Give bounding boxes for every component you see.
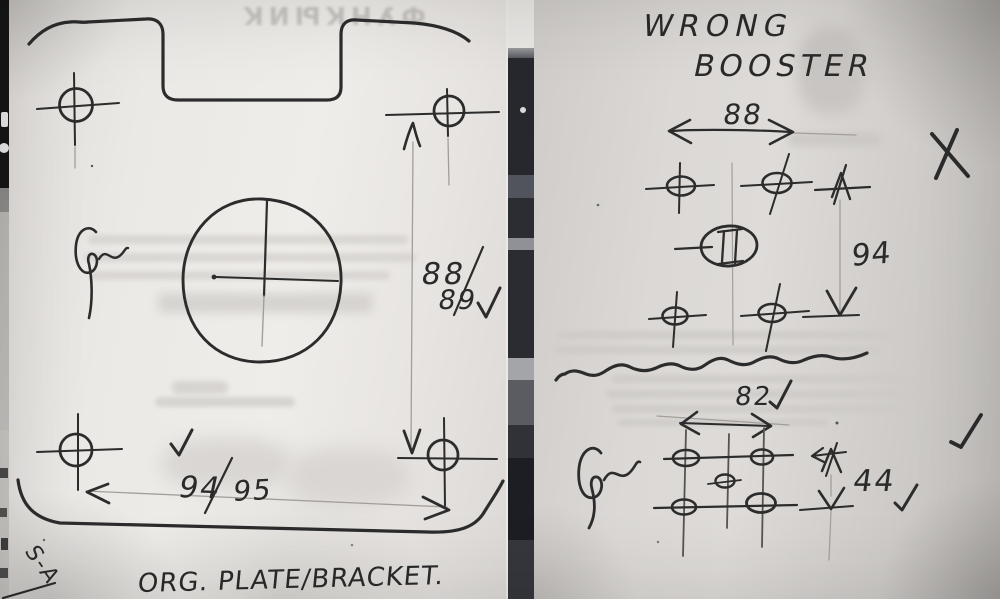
- edge-speck: [0, 468, 8, 478]
- title-line-2: BOOSTER: [690, 49, 877, 84]
- cursive-stroke: [579, 448, 602, 528]
- check-icon: [895, 485, 917, 510]
- hole-top-right: [386, 89, 499, 185]
- cursive-stroke: [76, 228, 97, 318]
- height-dimension-44: 44: [800, 443, 917, 560]
- dimension-bottom-line: [803, 315, 859, 317]
- big-check-icon: [951, 415, 981, 447]
- width-dimension-88: 88: [669, 98, 856, 144]
- cursive-initial-mark-left: [76, 228, 128, 318]
- center-guideline: [732, 163, 733, 345]
- upper-bolt-holes: [646, 154, 812, 351]
- hole-circle: [434, 96, 464, 126]
- arrow-down-icon: [404, 430, 420, 453]
- check-icon: [171, 430, 192, 455]
- hole-bottom-left: [37, 414, 122, 490]
- width-dimension-82: 82: [657, 381, 791, 437]
- hole-ellipse: [747, 494, 776, 513]
- arrow-up-icon: [404, 123, 420, 149]
- hole-crosshair: [37, 73, 119, 145]
- edge-speck: [0, 508, 7, 517]
- arrow-left-icon: [87, 484, 109, 503]
- x-mark-icon: [932, 130, 968, 178]
- check-icon: [478, 288, 500, 317]
- horizontal-dimension-94-95: 94 95: [86, 430, 449, 519]
- corner-underline: [3, 583, 55, 598]
- hole-crosshair: [398, 418, 497, 507]
- bore-vertical-line: [264, 201, 267, 296]
- ink-specks: [43, 165, 839, 547]
- hole-bottom-right: [398, 418, 497, 507]
- center-bore: [183, 199, 341, 362]
- dim-value: 82: [733, 382, 774, 412]
- ink-speck: [351, 544, 354, 547]
- dim-value-right: 95: [231, 473, 275, 508]
- wrong-booster-sketch: WRONG BOOSTER 88: [556, 9, 968, 380]
- symbol-entry-line: [675, 247, 712, 249]
- height-dimension-94: 94: [803, 165, 892, 317]
- ink-speck: [657, 541, 659, 543]
- hole-crosshair: [646, 163, 714, 213]
- dimension-line: [672, 130, 791, 132]
- dim-value-bottom: 89: [436, 285, 480, 316]
- hole-crosshair: [741, 154, 812, 214]
- bore-vertical-line-faint: [262, 296, 264, 346]
- cursive-stroke: [604, 462, 640, 480]
- original-plate-sketch: 88 89 94 95 ORG. PLATE/BRACKET: [3, 19, 503, 599]
- hole-crosshair: [741, 284, 809, 351]
- ink-speck: [91, 165, 93, 167]
- arrow-up-icon: [832, 173, 850, 199]
- dimension-line: [411, 142, 413, 449]
- cursive-initial-mark-right: [579, 448, 640, 528]
- dim-value: 88: [721, 98, 765, 131]
- wavy-separator-line: [556, 353, 867, 380]
- photo-of-hand-sketches: ФУНКЫИК: [0, 0, 1000, 599]
- edge-speck: [0, 568, 8, 578]
- ink-drawing-layer: 88 89 94 95 ORG. PLATE/BRACKET: [0, 0, 1000, 599]
- dimension-bottom-line: [800, 506, 853, 510]
- dimension-extension: [794, 133, 856, 135]
- dim-value: 94: [851, 235, 893, 274]
- gap-strip-dot: [520, 107, 526, 113]
- arrow-down-icon: [827, 288, 856, 315]
- dimension-top-line: [815, 187, 870, 190]
- dimension-extension: [829, 511, 831, 560]
- corner-mark: S-A: [19, 542, 65, 589]
- vertical-dimension-88-89: 88 89: [404, 123, 500, 453]
- roman-numeral-ii: [718, 229, 743, 264]
- cursive-stroke: [99, 248, 128, 259]
- edge-speck: [1, 538, 8, 550]
- hole-crosshair: [649, 292, 706, 347]
- edge-glyph: [1, 112, 8, 127]
- dimension-line: [680, 423, 770, 426]
- lower-bolt-pattern-sketch: 82: [579, 381, 981, 560]
- bore-radius-line: [216, 277, 338, 281]
- plate-outline-top: [29, 19, 469, 100]
- grid-vertical-guides: [683, 428, 764, 556]
- center-hole-line: [708, 480, 741, 484]
- hole-circle: [428, 440, 458, 470]
- ink-speck: [597, 204, 600, 207]
- bore-center-dot: [212, 275, 217, 280]
- title-line-1: WRONG: [639, 9, 796, 44]
- ink-speck: [836, 422, 839, 425]
- hole-top-left: [37, 73, 119, 168]
- edge-glyph: [0, 143, 9, 153]
- sketch-caption: ORG. PLATE/BRACKET.: [136, 561, 445, 599]
- hole-crosshair: [37, 414, 122, 490]
- dim-value: 44: [851, 464, 898, 499]
- ink-speck: [43, 539, 45, 541]
- crosshair-extension: [448, 138, 449, 185]
